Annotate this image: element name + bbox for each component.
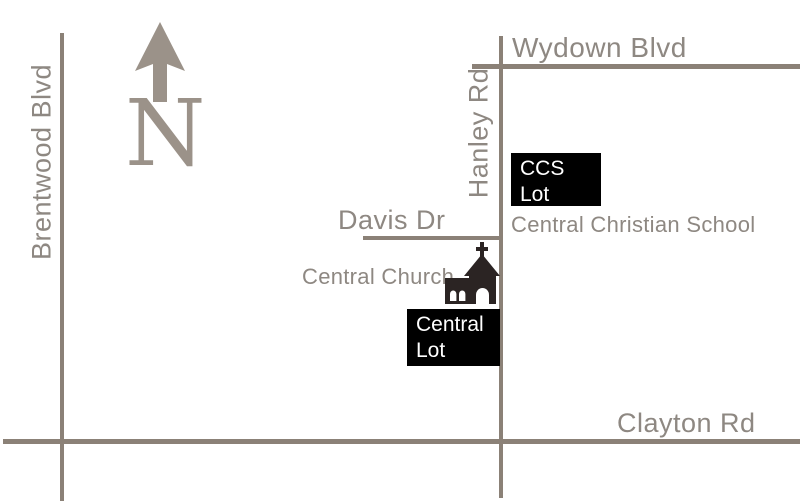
map-canvas: Brentwood Blvd Wydown Blvd Hanley Rd Dav… xyxy=(0,0,800,501)
ccs-lot-label-line1: CCS xyxy=(520,156,601,182)
compass-north-letter: N xyxy=(125,88,195,180)
clayton-rd-road xyxy=(3,439,800,444)
north-compass: N xyxy=(125,18,195,178)
davis-dr-road xyxy=(363,236,503,240)
central-christian-school-label: Central Christian School xyxy=(511,212,755,238)
ccs-lot-label-line2: Lot xyxy=(520,182,601,208)
davis-dr-label: Davis Dr xyxy=(338,205,446,236)
wydown-blvd-label: Wydown Blvd xyxy=(512,32,687,64)
central-lot-label-line2: Lot xyxy=(416,338,500,364)
central-lot-box: Central Lot xyxy=(407,309,500,366)
brentwood-blvd-label: Brentwood Blvd xyxy=(27,64,58,260)
church-icon xyxy=(444,242,500,304)
central-lot-label-line1: Central xyxy=(416,312,500,338)
hanley-rd-label: Hanley Rd xyxy=(464,68,495,199)
central-church-label: Central Church xyxy=(302,264,454,290)
ccs-lot-box: CCS Lot xyxy=(511,153,601,206)
wydown-blvd-road xyxy=(472,64,800,69)
brentwood-blvd-road xyxy=(60,33,64,501)
clayton-rd-label: Clayton Rd xyxy=(617,408,756,439)
